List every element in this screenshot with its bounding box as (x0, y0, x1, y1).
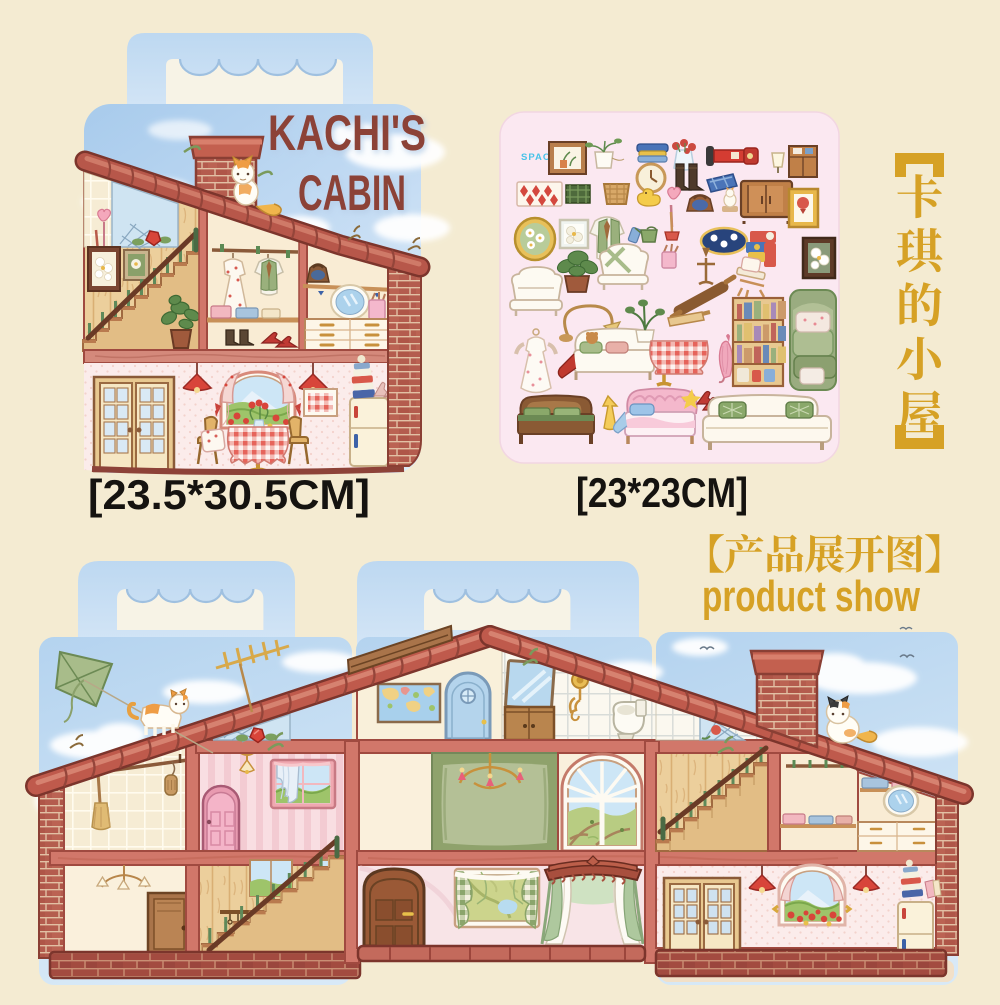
svg-text:[23.5*30.5CM]: [23.5*30.5CM] (88, 471, 370, 518)
svg-text:product show: product show (702, 572, 921, 621)
svg-text:KACHI'S: KACHI'S (268, 105, 426, 161)
svg-text:CABIN: CABIN (298, 165, 406, 221)
svg-text:[23*23CM]: [23*23CM] (576, 469, 748, 516)
